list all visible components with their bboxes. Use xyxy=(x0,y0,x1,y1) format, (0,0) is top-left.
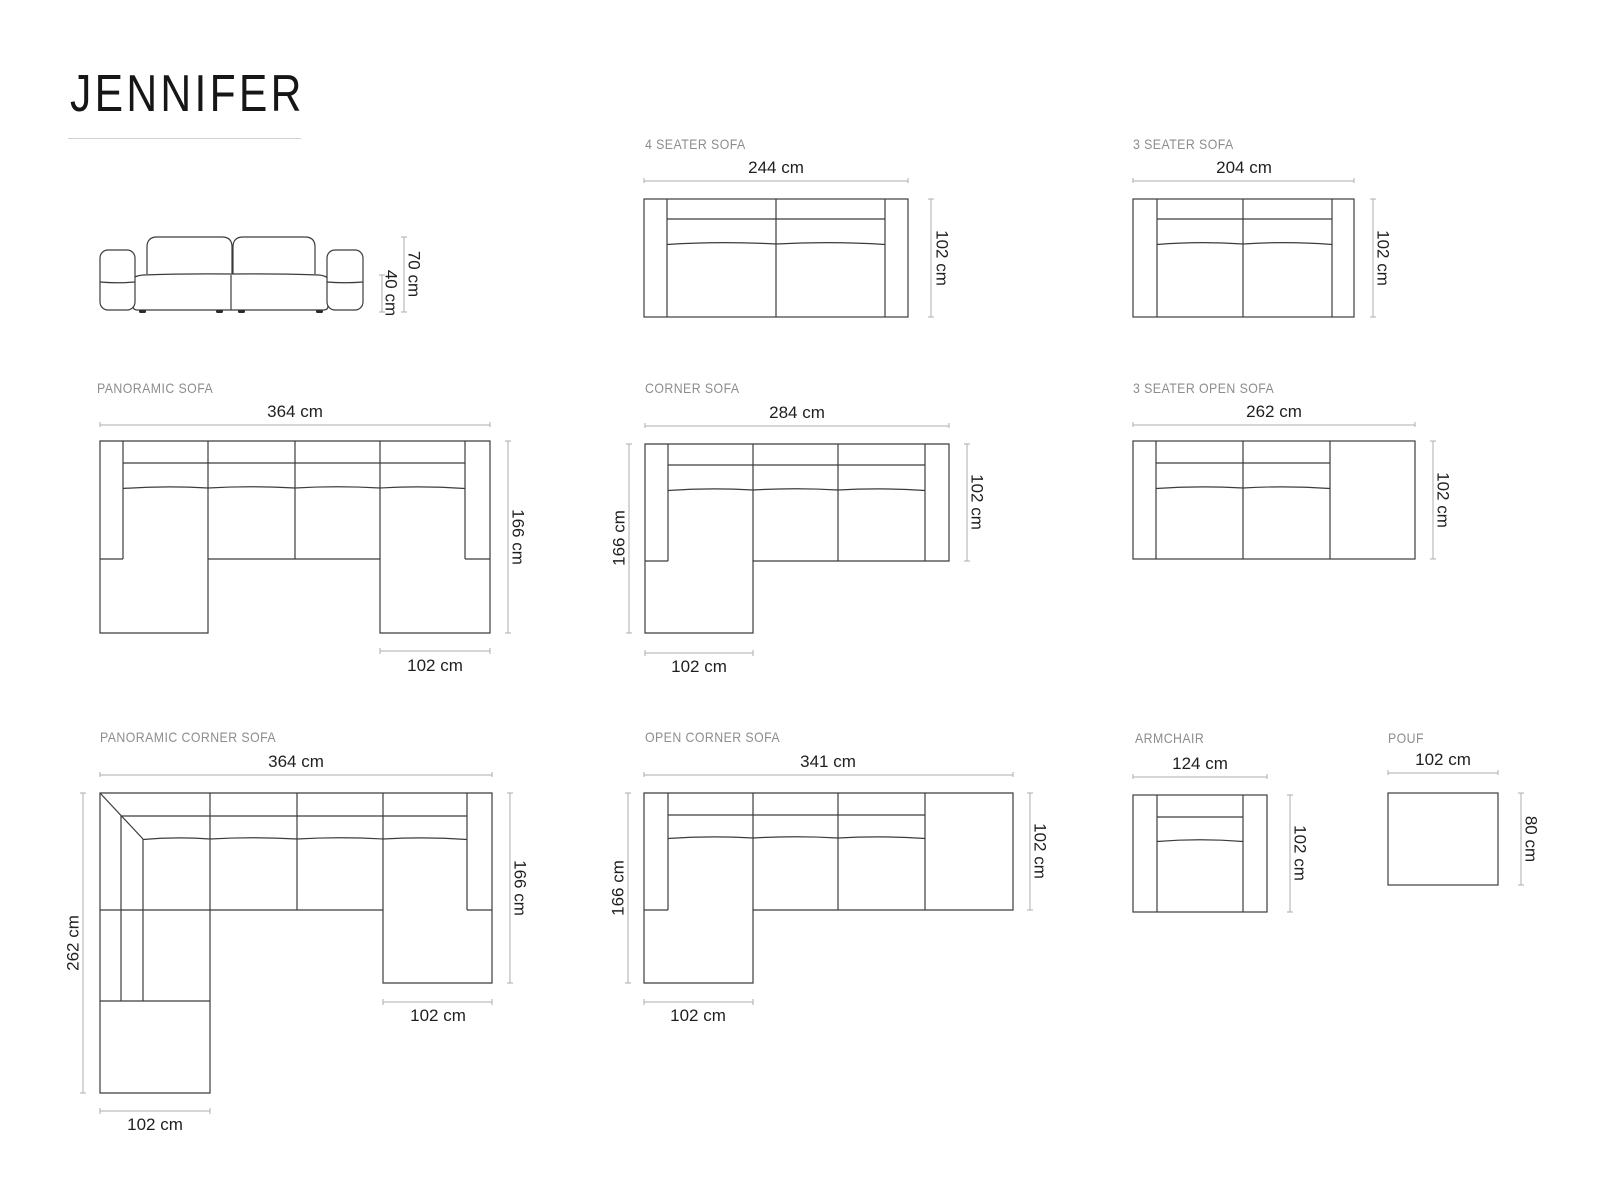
dim-depth: 102 cm xyxy=(1374,230,1393,286)
left-band xyxy=(100,441,123,559)
dim-right-chaise-width: 102 cm xyxy=(410,1006,466,1025)
sofa-plan-drawing xyxy=(1133,441,1415,559)
dim-seat-height: 40 cm xyxy=(382,270,401,316)
foot xyxy=(139,310,146,313)
dim-chaise-width: 102 cm xyxy=(671,657,727,676)
dimension-line-width xyxy=(1133,774,1267,779)
seat-divider xyxy=(753,793,925,910)
outline xyxy=(1133,795,1267,912)
dim-bottom-chaise-width: 102 cm xyxy=(127,1115,183,1134)
sofa-plan-drawing xyxy=(644,793,1013,983)
cushion-front-seam xyxy=(1157,243,1332,245)
dimension-line-chaise xyxy=(380,648,490,654)
dim-side-depth: 166 cm xyxy=(610,510,629,566)
dim-width: 364 cm xyxy=(267,402,323,421)
dim-depth: 102 cm xyxy=(1291,825,1310,881)
left-band xyxy=(645,444,668,561)
pouf-plan: 102 cm 80 cm xyxy=(1375,750,1550,915)
dim-side-depth: 166 cm xyxy=(609,860,628,916)
dim-width: 364 cm xyxy=(268,752,324,771)
armrest-line xyxy=(1157,199,1332,317)
dim-width: 204 cm xyxy=(1216,158,1272,177)
label-corner-sofa: CORNER SOFA xyxy=(645,381,740,395)
armchair-plan: 124 cm 102 cm xyxy=(1120,750,1320,945)
foot xyxy=(216,310,223,313)
seat-divider xyxy=(1243,441,1330,559)
open-corner-plan: 341 cm 166 cm 102 cm 102 cm xyxy=(600,750,1060,1045)
label-open-corner-sofa: OPEN CORNER SOFA xyxy=(645,730,780,744)
right-armrest xyxy=(327,250,363,310)
right-band xyxy=(467,793,492,910)
label-pouf: POUF xyxy=(1388,731,1424,745)
label-panoramic-sofa: PANORAMIC SOFA xyxy=(97,381,213,395)
dim-total-height: 70 cm xyxy=(405,251,424,297)
dimension-line-width xyxy=(644,178,908,183)
dim-width: 341 cm xyxy=(800,752,856,771)
cushion-front-seam xyxy=(668,837,925,839)
armchair-plan-drawing xyxy=(1133,795,1267,912)
dimension-line-width xyxy=(100,422,490,427)
backrest-seam xyxy=(121,816,467,1001)
dim-width: 244 cm xyxy=(748,158,804,177)
foot xyxy=(316,310,323,313)
dimension-line-width xyxy=(644,772,1013,777)
dim-right-depth: 166 cm xyxy=(511,860,530,916)
label-4-seater-sofa: 4 SEATER SOFA xyxy=(645,137,746,151)
dimension-line-width xyxy=(1133,422,1415,427)
dimension-line-chaise xyxy=(645,650,753,656)
foot xyxy=(238,310,245,313)
dimension-line-width xyxy=(1388,770,1498,775)
dim-depth: 102 cm xyxy=(1434,472,1453,528)
sofa-plan-drawing xyxy=(100,441,490,633)
dim-chaise-width: 102 cm xyxy=(407,656,463,675)
cushion-front-seam xyxy=(123,487,465,489)
4-seater-plan: 244 cm 102 cm xyxy=(630,160,955,335)
outline xyxy=(1133,441,1415,559)
corner-plan: 284 cm 166 cm 102 cm 102 cm xyxy=(600,400,1000,690)
3-seater-open-plan: 262 cm 102 cm xyxy=(1120,400,1460,590)
left-armrest xyxy=(100,250,135,310)
dim-width: 102 cm xyxy=(1415,750,1471,769)
title-underline xyxy=(68,138,301,139)
side-view-diagram: 70 cm 40 cm xyxy=(95,230,435,325)
seat-divider xyxy=(208,441,380,559)
dimension-line-right-chaise xyxy=(383,999,492,1005)
sofa-spec-sheet: JENNIFER 70 cm 40 cm 4 SEATER SOFA 244 c… xyxy=(0,0,1600,1200)
dimension-line-width xyxy=(645,423,949,428)
dim-width: 124 cm xyxy=(1172,754,1228,773)
sofa-plan-drawing xyxy=(644,199,908,317)
label-3-seater-sofa: 3 SEATER SOFA xyxy=(1133,137,1234,151)
label-panoramic-corner-sofa: PANORAMIC CORNER SOFA xyxy=(100,730,276,744)
left-band xyxy=(644,793,668,910)
dim-depth: 102 cm xyxy=(1031,823,1050,879)
dim-width: 262 cm xyxy=(1246,402,1302,421)
dim-width: 284 cm xyxy=(769,403,825,422)
dimension-line-chaise xyxy=(644,999,753,1005)
3-seater-plan: 204 cm 102 cm xyxy=(1120,160,1430,335)
outline xyxy=(1388,793,1498,885)
dim-depth: 102 cm xyxy=(968,474,987,530)
dimension-line-width xyxy=(100,772,492,777)
cushion-front-seam xyxy=(143,838,467,840)
dimension-line-width xyxy=(1133,178,1354,183)
sofa-plan-drawing xyxy=(100,793,492,1093)
cushion-front-seam xyxy=(668,489,925,491)
panoramic-corner-plan: 364 cm 262 cm 166 cm 102 cm 102 cm xyxy=(60,750,560,1145)
dim-depth: 102 cm xyxy=(933,230,952,286)
outline xyxy=(645,444,949,633)
sofa-front-drawing xyxy=(100,237,363,313)
seat-divider xyxy=(753,444,838,561)
armrest-line xyxy=(1157,795,1243,912)
dim-depth: 166 cm xyxy=(509,509,528,565)
dim-left-depth: 262 cm xyxy=(64,915,83,971)
dim-chaise-width: 102 cm xyxy=(670,1006,726,1025)
label-armchair: ARMCHAIR xyxy=(1135,731,1204,745)
sofa-plan-drawing xyxy=(645,444,949,633)
sofa-plan-drawing xyxy=(1133,199,1354,317)
outline xyxy=(644,793,1013,983)
right-band xyxy=(465,441,490,559)
dimension-line-bottom-chaise xyxy=(100,1108,210,1114)
back-cushion xyxy=(147,237,232,274)
back-cushion xyxy=(233,237,315,274)
label-3-seater-open-sofa: 3 SEATER OPEN SOFA xyxy=(1133,381,1274,395)
dim-depth: 80 cm xyxy=(1522,816,1541,862)
panoramic-plan: 364 cm 166 cm 102 cm xyxy=(85,400,545,690)
cushion-front-seam xyxy=(1157,840,1243,842)
page-title: JENNIFER xyxy=(70,68,305,120)
seat-divider xyxy=(210,793,383,910)
